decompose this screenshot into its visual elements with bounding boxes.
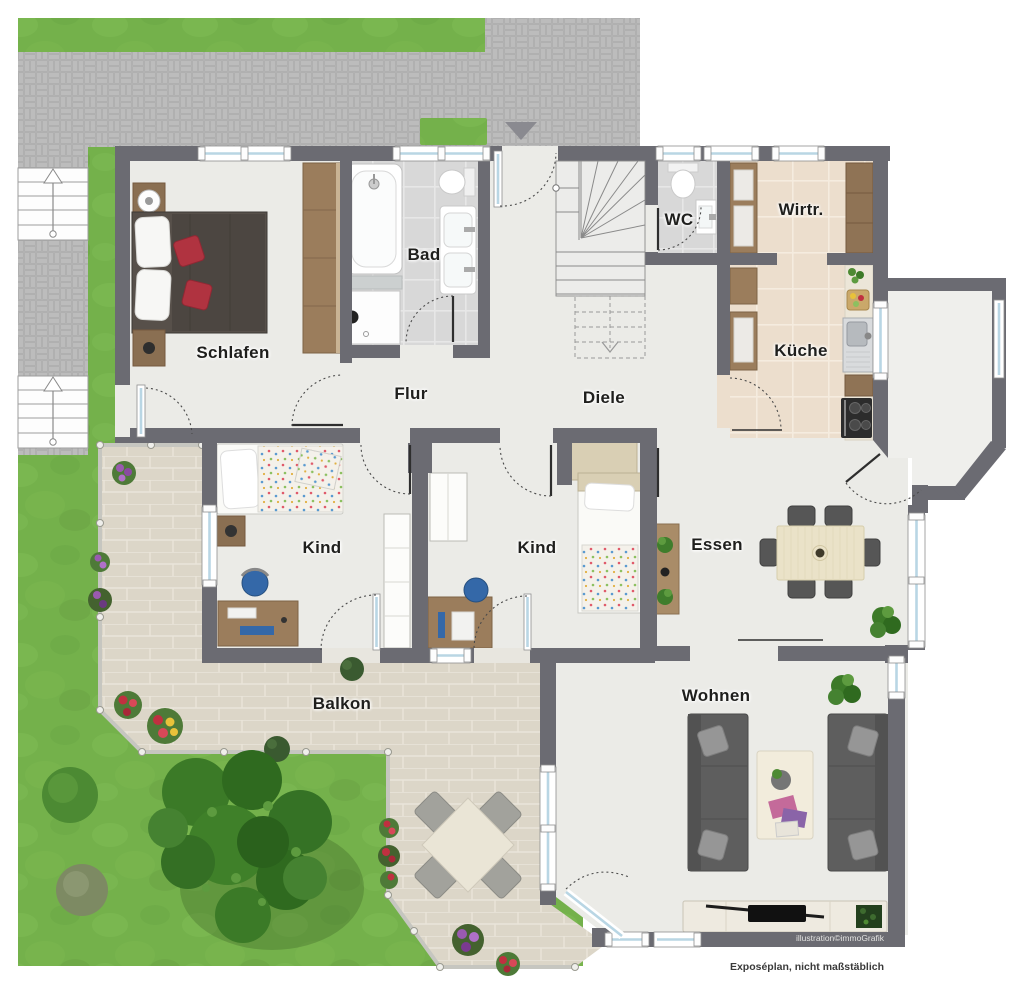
faucet-icon bbox=[464, 267, 475, 272]
pillow bbox=[220, 449, 260, 509]
wardrobe bbox=[384, 514, 410, 648]
window bbox=[656, 146, 701, 161]
sofa-cushion bbox=[847, 829, 879, 861]
dining-chair bbox=[788, 506, 815, 526]
exterior-stairs bbox=[18, 168, 88, 240]
kitchen-sink bbox=[843, 318, 873, 372]
pillow bbox=[584, 483, 634, 512]
dining-chair bbox=[788, 578, 815, 598]
tv-lowboard bbox=[683, 901, 887, 932]
window bbox=[772, 146, 825, 161]
window bbox=[654, 932, 701, 947]
plan-disclaimer: Exposéplan, nicht maßstäblich bbox=[730, 961, 884, 973]
sofa bbox=[828, 714, 888, 871]
room-label-kind-2: Kind bbox=[518, 538, 557, 558]
room-label-bad: Bad bbox=[407, 245, 440, 265]
faucet-icon bbox=[709, 214, 716, 220]
window bbox=[873, 301, 888, 380]
room-label-balkon: Balkon bbox=[313, 694, 371, 714]
sofa bbox=[688, 714, 748, 871]
window bbox=[704, 146, 759, 161]
desk-chair bbox=[464, 578, 488, 602]
duvet bbox=[582, 545, 638, 611]
bush bbox=[340, 657, 364, 681]
floor-plan: Schlafen Bad Flur Diele WC Wirtr. Küche … bbox=[0, 0, 1024, 988]
patio-seating bbox=[413, 790, 522, 899]
flower-box bbox=[496, 952, 520, 976]
toilet bbox=[464, 168, 475, 196]
cabinet bbox=[730, 268, 757, 304]
faucet-icon bbox=[464, 227, 475, 232]
bush bbox=[56, 864, 108, 916]
room-label-kind-1: Kind bbox=[303, 538, 342, 558]
bath-shelf bbox=[346, 276, 402, 289]
window bbox=[994, 300, 1004, 378]
stove bbox=[841, 398, 872, 438]
window bbox=[430, 648, 471, 663]
flower-strip bbox=[378, 818, 400, 889]
bush bbox=[42, 767, 98, 823]
red-cushion bbox=[181, 279, 213, 311]
illustration-credit: illustration©immoGrafik bbox=[796, 933, 884, 943]
driveway-grass-patch bbox=[420, 118, 487, 145]
room-label-diele: Diele bbox=[583, 388, 625, 408]
dining-chair bbox=[825, 506, 852, 526]
dining-chair bbox=[862, 539, 880, 566]
window bbox=[605, 932, 649, 947]
room-label-wirtschaftsraum: Wirtr. bbox=[778, 200, 823, 220]
room-label-kueche: Küche bbox=[774, 341, 827, 361]
t-v-icon bbox=[748, 905, 806, 922]
coffee-table bbox=[757, 751, 813, 839]
pillow bbox=[135, 269, 172, 321]
cabinet bbox=[846, 163, 873, 253]
window bbox=[393, 146, 490, 161]
dining-chair bbox=[825, 578, 852, 598]
exterior-stairs bbox=[18, 376, 88, 448]
floor-plan-drawing bbox=[0, 0, 1024, 988]
room-label-essen: Essen bbox=[691, 535, 743, 555]
room-label-wc: WC bbox=[665, 210, 694, 230]
faucet-icon bbox=[865, 333, 872, 340]
room-label-schlafen: Schlafen bbox=[196, 343, 269, 363]
window bbox=[202, 505, 217, 587]
window bbox=[198, 146, 291, 161]
window bbox=[908, 513, 925, 648]
plant-box bbox=[856, 905, 882, 928]
flower-box bbox=[112, 461, 136, 485]
room-label-flur: Flur bbox=[394, 384, 427, 404]
window bbox=[888, 656, 905, 699]
window bbox=[540, 765, 556, 891]
pillow bbox=[135, 216, 172, 268]
cabinet bbox=[845, 375, 873, 396]
dining-chair bbox=[760, 539, 778, 566]
fruit-bowl-icon bbox=[847, 290, 869, 310]
room-label-wohnen: Wohnen bbox=[682, 686, 751, 706]
flower-box bbox=[452, 924, 484, 956]
